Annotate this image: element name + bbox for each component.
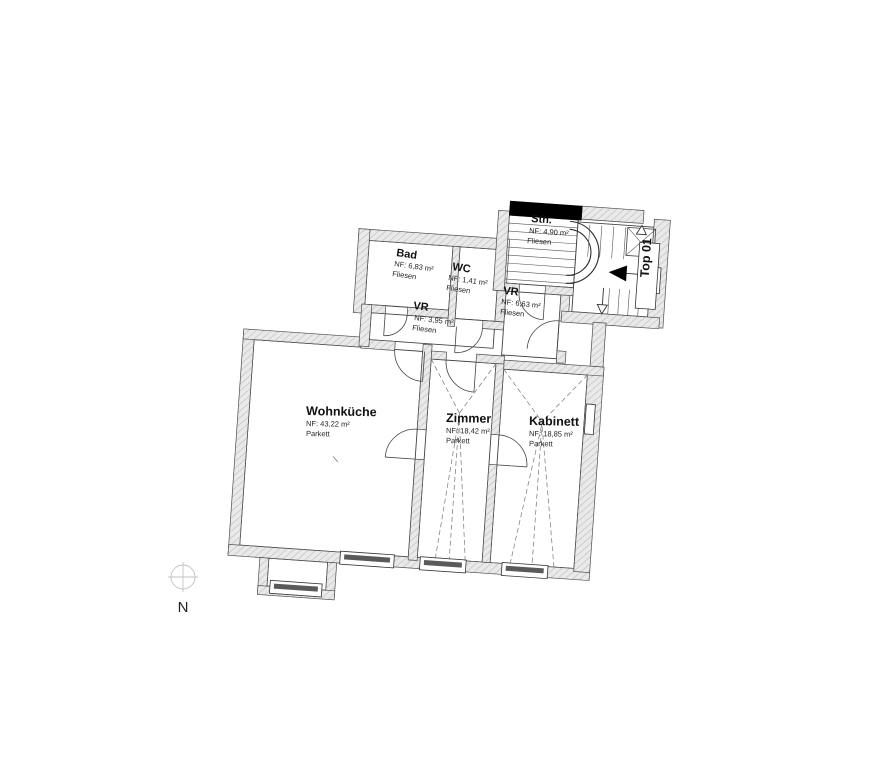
label-kabinett-name: Kabinett xyxy=(529,414,580,429)
label-zimmer-area: NF: 18,42 m² xyxy=(446,426,490,436)
wall-segment xyxy=(476,354,504,364)
window-zimmer xyxy=(419,557,466,573)
floorplan-drawing: Wohnküche NF: 43,22 m² Parkett Zimmer NF… xyxy=(0,0,884,768)
floorplan-page: Wohnküche NF: 43,22 m² Parkett Zimmer NF… xyxy=(0,0,884,768)
north-indicator: N xyxy=(168,562,198,616)
plan-geometry xyxy=(225,183,671,621)
label-wohnkueche-floor: Parkett xyxy=(306,429,331,438)
label-vr-klein-name: VR xyxy=(413,300,430,314)
wall-segment xyxy=(431,351,447,360)
label-zimmer-floor: Parkett xyxy=(446,436,471,445)
label-zimmer-name: Zimmer xyxy=(446,411,492,426)
wall-segment xyxy=(590,322,606,367)
label-wohnkueche-area: NF: 43,22 m² xyxy=(306,419,350,429)
window-kabinett xyxy=(501,562,548,578)
wall-niche xyxy=(584,404,595,435)
label-kabinett-floor: Parkett xyxy=(529,439,554,448)
label-stiegenhaus-floor: Fliesen xyxy=(527,236,552,247)
wall-segment xyxy=(581,206,644,223)
label-kabinett-area: NF: 18,85 m² xyxy=(529,429,573,439)
wall-segment xyxy=(482,321,504,330)
label-north: N xyxy=(178,599,189,616)
room-kabinett xyxy=(490,369,587,568)
wall-segment xyxy=(556,351,566,364)
label-wohnkueche-name: Wohnküche xyxy=(306,404,377,419)
wall-segment xyxy=(545,286,573,296)
label-unit-top01: Top 01 xyxy=(638,238,655,278)
room-wohnkueche xyxy=(240,340,423,557)
label-stiegenhaus-name: Sth. xyxy=(531,213,553,226)
